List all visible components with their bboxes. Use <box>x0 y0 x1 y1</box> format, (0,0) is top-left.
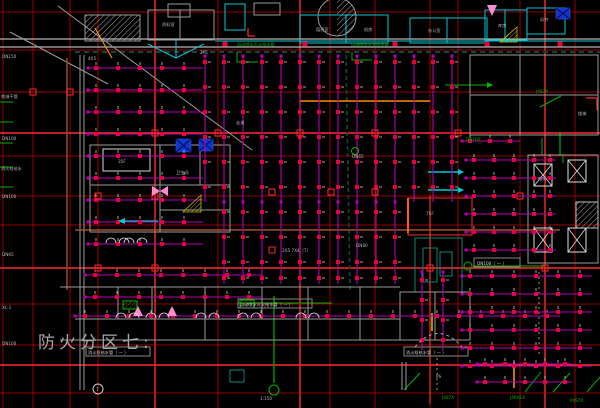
room-outline <box>148 10 214 40</box>
sprinkler-head <box>116 154 120 158</box>
sprinkler-head <box>138 198 142 202</box>
pipe-end <box>461 329 464 332</box>
cad-label: 电梯 <box>538 175 546 182</box>
sprinkler-head <box>94 110 98 114</box>
sprinkler-head <box>512 248 516 252</box>
duct-dashed-line <box>346 55 350 290</box>
sprinkler-head <box>512 292 516 296</box>
sprinkler-head <box>222 60 226 64</box>
sprinkler-head <box>563 380 567 384</box>
sprinkler-head <box>94 154 98 158</box>
sprinkler-head <box>556 328 560 332</box>
cad-label: 库房 <box>498 22 506 29</box>
sprinkler-head <box>336 260 340 264</box>
green-leader <box>587 377 600 392</box>
cad-label: P4S7X <box>570 398 584 403</box>
sprinkler-head <box>532 158 536 162</box>
sprinkler-head <box>222 85 226 89</box>
sprinkler-head <box>534 328 538 332</box>
sprinkler-head <box>532 176 536 180</box>
sprinkler-head <box>116 88 120 92</box>
sprinkler-head <box>431 135 435 139</box>
sprinkler-head <box>222 110 226 114</box>
pipe-end <box>375 201 378 204</box>
sprinkler-head <box>137 295 141 299</box>
node-marker <box>269 189 275 195</box>
sprinkler-head <box>116 66 120 70</box>
sprinkler-head <box>138 220 142 224</box>
cad-label: J4S7X <box>441 395 454 400</box>
sprinkler-head <box>412 85 416 89</box>
sprinkler-head <box>138 242 142 246</box>
sprinkler-head <box>393 135 397 139</box>
sprinkler-head <box>260 60 264 64</box>
sprinkler-head <box>355 160 359 164</box>
sprinkler-head <box>83 314 87 318</box>
cyan-vee <box>148 44 176 58</box>
pink-bow <box>152 186 160 196</box>
sprinkler-head <box>182 132 186 136</box>
pipe-end <box>261 55 264 58</box>
sprinkler-head <box>512 328 516 332</box>
sprinkler-head <box>317 260 321 264</box>
sprinkler-head <box>93 273 97 277</box>
cad-label: 75F <box>426 211 434 216</box>
sprinkler-head <box>543 380 547 384</box>
pipe-end <box>465 177 468 180</box>
pipe-end <box>356 201 359 204</box>
sprinkler-head <box>336 135 340 139</box>
cad-label: 7 <box>96 387 99 392</box>
sprinkler-head <box>160 110 164 114</box>
sprinkler-head <box>483 380 487 384</box>
sprinkler-head <box>317 210 321 214</box>
node-marker-filled <box>558 42 563 47</box>
cad-label: J46AEX <box>509 395 525 400</box>
sprinkler-head <box>203 273 207 277</box>
cad-label: DN65 <box>2 252 14 257</box>
sprinkler-head <box>203 185 207 189</box>
sprinkler-head <box>279 235 283 239</box>
sprinkler-head <box>298 110 302 114</box>
sprinkler-head <box>222 235 226 239</box>
pipe-end <box>280 55 283 58</box>
sprinkler-head <box>182 220 186 224</box>
sprinkler-head <box>355 185 359 189</box>
cad-label: 机房 <box>364 26 372 33</box>
sprinkler-head <box>490 346 494 350</box>
cad-label: 资料室 <box>162 21 175 28</box>
room-outline-cyan <box>225 4 245 30</box>
pipe-end <box>432 55 435 58</box>
sprinkler-head <box>374 60 378 64</box>
sprinkler-head <box>279 110 283 114</box>
sprinkler-head <box>512 158 516 162</box>
cad-label: 办公室 <box>428 27 441 34</box>
cad-label: 自动喷水灭火给水管 <box>351 41 389 48</box>
sprinkler-head <box>317 276 321 280</box>
sprinkler-head <box>490 328 494 332</box>
pipe-end <box>461 293 464 296</box>
pipe-end <box>442 271 445 274</box>
sprinkler-head <box>374 185 378 189</box>
sprinkler-head <box>336 60 340 64</box>
sprinkler-head <box>472 158 476 162</box>
cad-label: 4X5 <box>88 56 97 61</box>
sprinkler-head <box>138 176 142 180</box>
pipe-end <box>375 55 378 58</box>
node-marker-filled <box>393 42 398 47</box>
sprinkler-head <box>336 235 340 239</box>
sprinkler-head <box>374 110 378 114</box>
sprinkler-head <box>534 364 538 368</box>
sprinkler-head <box>116 198 120 202</box>
sprinkler-head <box>532 194 536 198</box>
sprinkler-head <box>492 230 496 234</box>
sprinkler-head <box>393 235 397 239</box>
cad-label: DN100 <box>466 137 481 142</box>
sprinkler-head <box>138 154 142 158</box>
sprinkler-head <box>325 314 329 318</box>
pipe-end <box>465 249 468 252</box>
pipe-end <box>476 381 479 384</box>
sprinkler-head <box>548 158 552 162</box>
sprinkler-head <box>578 310 582 314</box>
sprinkler-head <box>203 295 207 299</box>
sprinkler-head <box>490 292 494 296</box>
sprinkler-head <box>355 260 359 264</box>
cad-label: DN100 <box>2 194 17 199</box>
cad-label: 楼梯 <box>578 110 586 117</box>
pipe-end <box>421 271 424 274</box>
cad-label: XL-1 <box>2 305 12 310</box>
floor-drain <box>123 301 137 309</box>
pipe-end <box>87 243 90 246</box>
sprinkler-head <box>556 364 560 368</box>
sprinkler-head <box>279 135 283 139</box>
sprinkler-head <box>94 242 98 246</box>
sprinkler-head <box>260 210 264 214</box>
pipe-end <box>87 89 90 92</box>
pipe-end <box>223 55 226 58</box>
sprinkler-head <box>393 276 397 280</box>
sprinkler-head <box>512 230 516 234</box>
sprinkler-head <box>488 139 492 143</box>
sprinkler-head <box>336 185 340 189</box>
cad-viewport[interactable]: 自动喷水灭火给水管自动喷水灭火给水管DN150喷淋干管DN100消火栓给水DN1… <box>0 0 600 408</box>
sprinkler-head <box>545 314 549 318</box>
sprinkler-head <box>279 276 283 280</box>
room-outline <box>254 3 280 15</box>
sprinkler-head <box>260 160 264 164</box>
sprinkler-head <box>420 298 424 302</box>
grid-bubble-green <box>269 385 279 395</box>
cad-label: DN80 <box>356 243 368 248</box>
sprinkler-head <box>483 362 487 366</box>
pipe-end <box>87 111 90 114</box>
sprinkler-head <box>241 210 245 214</box>
sprinkler-head <box>374 85 378 89</box>
sprinkler-head <box>247 273 251 277</box>
sprinkler-head <box>160 132 164 136</box>
sprinkler-head <box>94 220 98 224</box>
node-marker <box>269 247 275 253</box>
pipe-end <box>461 365 464 368</box>
sprinkler-head <box>534 310 538 314</box>
cad-label: 35F <box>118 159 126 164</box>
sprinkler-head <box>556 274 560 278</box>
sprinkler-head <box>317 110 321 114</box>
green-leader <box>237 52 258 62</box>
sprinkler-head <box>435 314 439 318</box>
sprinkler-head <box>138 132 142 136</box>
sprinkler-head <box>468 346 472 350</box>
sprinkler-head <box>241 160 245 164</box>
sprinkler-head <box>260 260 264 264</box>
sprinkler-head <box>490 364 494 368</box>
sprinkler-head <box>468 292 472 296</box>
sprinkler-head <box>512 212 516 216</box>
sprinkler-head <box>94 132 98 136</box>
sprinkler-head <box>116 132 120 136</box>
sprinkler-head <box>298 160 302 164</box>
sprinkler-head <box>182 242 186 246</box>
sprinkler-head <box>355 276 359 280</box>
cad-label: 喷淋干管 <box>1 93 18 100</box>
sprinkler-head <box>548 248 552 252</box>
pipe-end <box>223 201 226 204</box>
sprinkler-head <box>523 362 527 366</box>
pipe-end <box>87 155 90 158</box>
pipe-end <box>337 201 340 204</box>
sprinkler-head <box>94 88 98 92</box>
pipe-end <box>261 201 264 204</box>
fixture-outline <box>103 149 150 171</box>
sprinkler-head <box>336 85 340 89</box>
cad-label: DN65 <box>352 154 364 159</box>
sprinkler-head <box>492 212 496 216</box>
sprinkler-head <box>468 310 472 314</box>
pipe-end <box>461 311 464 314</box>
hatched-disc-half <box>337 0 356 36</box>
cad-label: 消火栓给水管（ 一 ） <box>406 349 446 356</box>
sprinkler-head <box>94 176 98 180</box>
sprinkler-head <box>149 314 153 318</box>
sprinkler-head <box>281 314 285 318</box>
sprinkler-head <box>578 292 582 296</box>
sprinkler-head <box>241 185 245 189</box>
sprinkler-head <box>512 310 516 314</box>
sprinkler-head <box>317 135 321 139</box>
sprinkler-head <box>203 85 207 89</box>
sprinkler-head <box>503 380 507 384</box>
sprinkler-head <box>336 110 340 114</box>
cad-label: 值班室 <box>316 26 329 33</box>
sprinkler-head <box>298 210 302 214</box>
sprinkler-head <box>490 310 494 314</box>
sprinkler-head <box>532 212 536 216</box>
sprinkler-head <box>116 176 120 180</box>
sprinkler-head <box>94 66 98 70</box>
sprinkler-head <box>374 260 378 264</box>
sprinkler-head <box>336 276 340 280</box>
sprinkler-head <box>115 273 119 277</box>
cad-label: DN100 <box>2 341 17 346</box>
sprinkler-head <box>160 154 164 158</box>
pipe-end <box>394 55 397 58</box>
sprinkler-head <box>556 292 560 296</box>
sprinkler-head <box>317 160 321 164</box>
sprinkler-head <box>222 210 226 214</box>
pipe-end <box>461 140 464 143</box>
sprinkler-head <box>279 85 283 89</box>
stair-triangle <box>183 195 201 212</box>
sprinkler-head <box>116 110 120 114</box>
pipe-end <box>299 201 302 204</box>
sprinkler-head <box>492 194 496 198</box>
sprinkler-head <box>492 176 496 180</box>
sprinkler-head <box>472 230 476 234</box>
pipe-end <box>280 201 283 204</box>
sprinkler-head <box>260 110 264 114</box>
sprinkler-head <box>441 298 445 302</box>
sprinkler-head <box>441 338 445 342</box>
sprinkler-head <box>374 160 378 164</box>
pipe-end <box>465 231 468 234</box>
pipe-end <box>299 55 302 58</box>
pipe-end <box>465 213 468 216</box>
sprinkler-head <box>523 380 527 384</box>
pipe-end <box>394 201 397 204</box>
sprinkler-head <box>441 318 445 322</box>
green-leader <box>352 52 372 60</box>
sprinkler-head <box>225 295 229 299</box>
sprinkler-head <box>203 160 207 164</box>
pipe-end <box>318 201 321 204</box>
sprinkler-head <box>93 295 97 299</box>
arrow-head <box>458 187 464 193</box>
sprinkler-head <box>222 135 226 139</box>
sprinkler-head <box>260 135 264 139</box>
cad-label: 2X5 7X4（7） <box>282 248 311 253</box>
sprinkler-head <box>138 110 142 114</box>
pipe-end <box>242 201 245 204</box>
node-marker-filled <box>485 42 490 47</box>
pipe-end <box>242 55 245 58</box>
pipe-end <box>84 296 87 299</box>
green-leader <box>540 96 561 107</box>
sprinkler-head <box>138 88 142 92</box>
sprinkler-head <box>512 346 516 350</box>
sprinkler-head <box>548 212 552 216</box>
cad-label: 自动喷水灭火给水管（ 一 ） <box>240 301 293 308</box>
stair-triangle <box>500 27 517 42</box>
pipe-end <box>413 55 416 58</box>
sprinkler-head <box>412 185 416 189</box>
sprinkler-head <box>138 66 142 70</box>
sprinkler-head <box>160 220 164 224</box>
sprinkler-head <box>260 185 264 189</box>
cad-label: 卫生间 <box>176 169 189 176</box>
cad-label: DN100（ 一 ） <box>477 261 507 266</box>
pink-arrow-up <box>167 306 177 316</box>
node-marker-filled <box>303 42 308 47</box>
sprinkler-head <box>534 274 538 278</box>
pipe-end <box>461 275 464 278</box>
sprinkler-head <box>512 176 516 180</box>
sprinkler-head <box>182 154 186 158</box>
sprinkler-head <box>298 185 302 189</box>
sprinkler-head <box>450 85 454 89</box>
fire-zone-label: 防火分区七: <box>38 328 153 353</box>
sprinkler-head <box>298 85 302 89</box>
sprinkler-head <box>420 318 424 322</box>
sprinkler-head <box>512 274 516 278</box>
sprinkler-head <box>431 60 435 64</box>
pipe-end <box>74 315 77 318</box>
sprinkler-head <box>241 60 245 64</box>
sprinkler-head <box>355 210 359 214</box>
sprinkler-head <box>203 135 207 139</box>
sprinkler-head <box>317 235 321 239</box>
sprinkler-head <box>472 176 476 180</box>
sprinkler-head <box>391 314 395 318</box>
sprinkler-head <box>501 314 505 318</box>
sprinkler-head <box>241 135 245 139</box>
sprinkler-head <box>203 110 207 114</box>
cad-label: 风井 <box>540 16 548 23</box>
sprinkler-head <box>490 274 494 278</box>
sprinkler-head <box>298 276 302 280</box>
sprinkler-head <box>182 176 186 180</box>
sprinkler-head <box>578 364 582 368</box>
sprinkler-head <box>450 110 454 114</box>
sprinkler-head <box>222 185 226 189</box>
sprinkler-head <box>279 185 283 189</box>
pipe-end <box>87 199 90 202</box>
sprinkler-head <box>523 314 527 318</box>
sprinkler-head <box>468 328 472 332</box>
cad-label: PS <box>436 374 442 379</box>
sprinkler-head <box>512 364 516 368</box>
sprinkler-head <box>393 210 397 214</box>
sprinkler-head <box>431 85 435 89</box>
sprinkler-head <box>260 276 264 280</box>
sprinkler-head <box>159 295 163 299</box>
sprinkler-head <box>450 60 454 64</box>
sprinkler-head <box>347 314 351 318</box>
cad-label: DN150 <box>2 54 17 59</box>
sprinkler-head <box>182 66 186 70</box>
sprinkler-head <box>182 198 186 202</box>
sprinkler-head <box>431 110 435 114</box>
node-marker <box>328 189 334 195</box>
pipe-end <box>318 55 321 58</box>
sprinkler-head <box>393 60 397 64</box>
pipe-end <box>87 221 90 224</box>
sprinkler-head <box>512 194 516 198</box>
sprinkler-head <box>450 160 454 164</box>
sprinkler-head <box>137 273 141 277</box>
sprinkler-head <box>548 176 552 180</box>
sprinkler-head <box>450 135 454 139</box>
sprinkler-head <box>457 314 461 318</box>
cad-label: 消火栓给水 <box>1 165 23 172</box>
sprinkler-head <box>336 210 340 214</box>
sprinkler-head <box>431 160 435 164</box>
sprinkler-head <box>115 295 119 299</box>
cad-label: 走道 <box>236 119 245 126</box>
